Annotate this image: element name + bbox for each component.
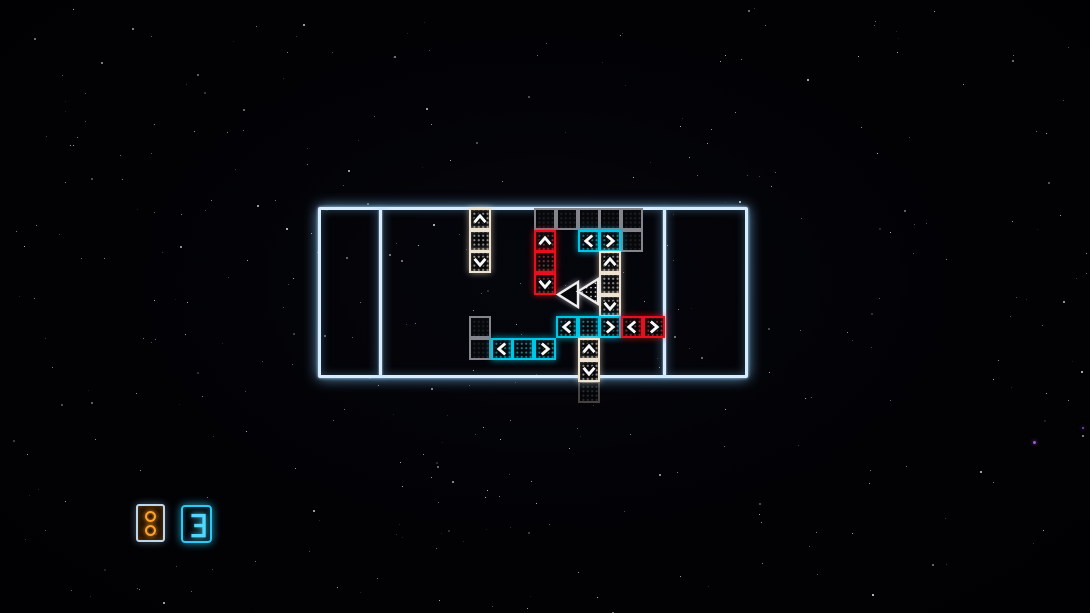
arrowhead-hollow[interactable]: [558, 282, 578, 307]
token-pips-tile[interactable]: [136, 504, 165, 542]
token-ring-icon: [145, 511, 156, 522]
counter-3-tile[interactable]: 3: [181, 505, 212, 543]
arrowhead-dotted[interactable]: [578, 279, 598, 304]
token-ring-icon: [145, 525, 156, 536]
game-scene: 3: [0, 0, 1090, 613]
digit-3-icon: 3: [185, 509, 209, 539]
